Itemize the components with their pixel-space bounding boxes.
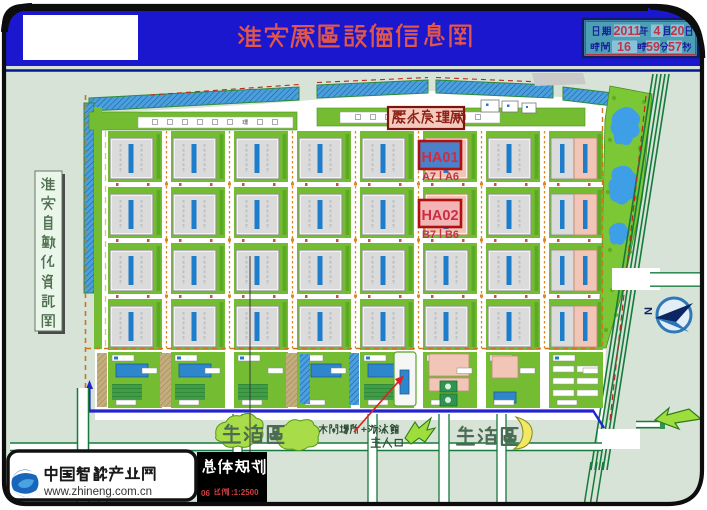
svg-text:HA02: HA02	[421, 208, 458, 224]
svg-text::1:2500: :1:2500	[231, 488, 259, 497]
svg-text:2011: 2011	[613, 24, 640, 38]
svg-text:57: 57	[668, 40, 682, 54]
svg-text:+: +	[361, 425, 367, 436]
svg-text:HA01: HA01	[421, 150, 458, 166]
svg-text:59: 59	[646, 40, 660, 54]
svg-text:B6: B6	[445, 229, 459, 241]
svg-text:N: N	[643, 307, 655, 315]
svg-text:06: 06	[201, 489, 210, 498]
svg-text:16: 16	[617, 40, 631, 54]
svg-text:20: 20	[671, 24, 685, 38]
svg-text:B7: B7	[422, 229, 436, 241]
svg-text:4: 4	[654, 24, 661, 38]
svg-text:www.zhineng.com.cn: www.zhineng.com.cn	[43, 486, 152, 498]
svg-text:A6: A6	[445, 171, 459, 183]
svg-text:A7: A7	[422, 171, 436, 183]
